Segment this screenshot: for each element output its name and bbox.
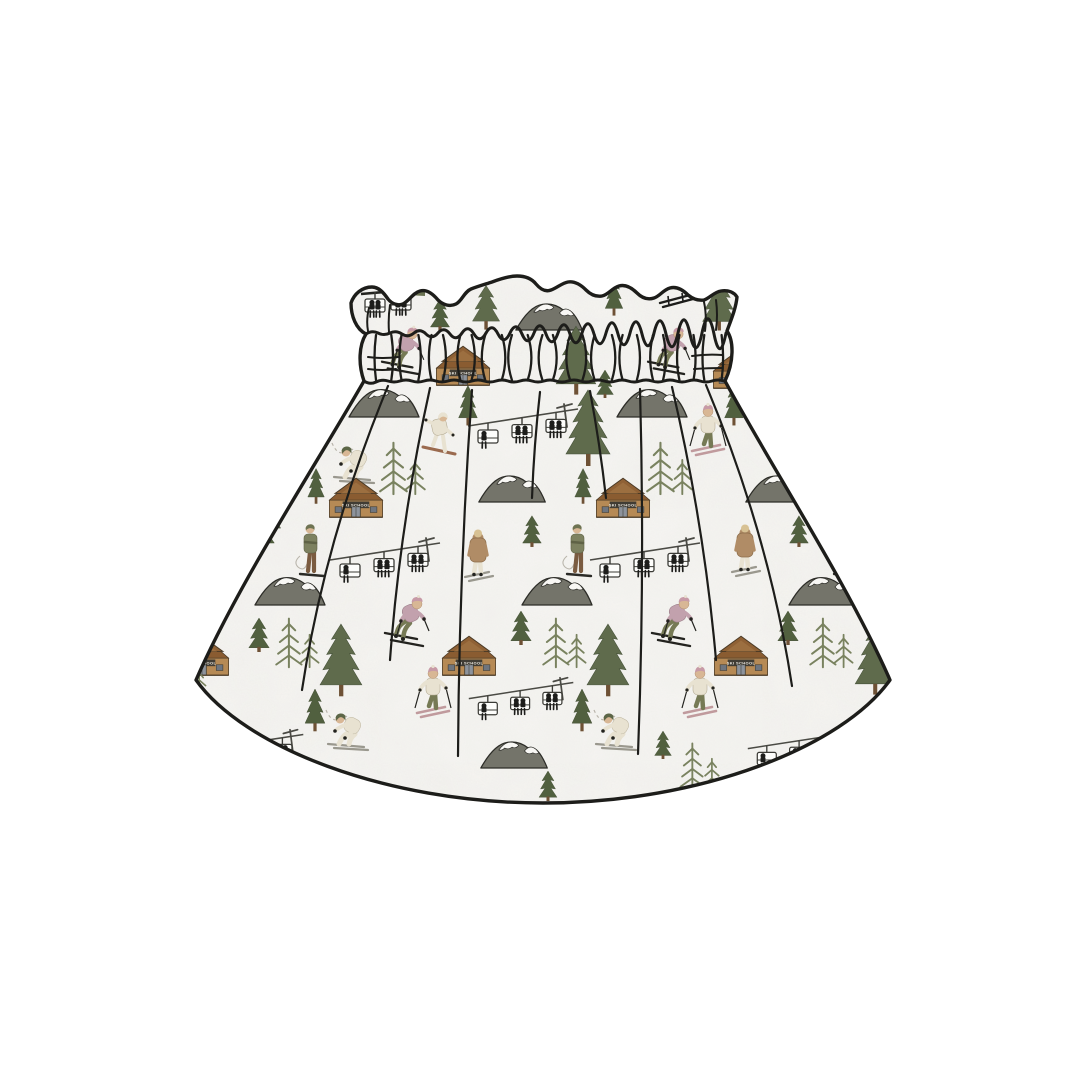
motif-spruceThin xyxy=(842,469,859,504)
motif-sparsePair xyxy=(170,655,208,698)
motif-pineSmall xyxy=(256,516,275,547)
svg-text:SKI SCHOOL: SKI SCHOOL xyxy=(870,503,899,508)
skirt-illustration: SKI SCHOOLSKI SCHOOLSKI SCHOOLSKI SCHOOL… xyxy=(0,0,1080,1080)
motif-mountain xyxy=(212,476,279,502)
mockup-stage: SKI SCHOOLSKI SCHOOLSKI SCHOOLSKI SCHOOL… xyxy=(0,0,1080,1080)
motif-spruceMd xyxy=(837,420,866,467)
motif-cabin: SKI SCHOOL xyxy=(857,478,910,517)
motif-walker xyxy=(198,530,226,582)
svg-text:SKI SCHOOL: SKI SCHOOL xyxy=(726,374,755,379)
